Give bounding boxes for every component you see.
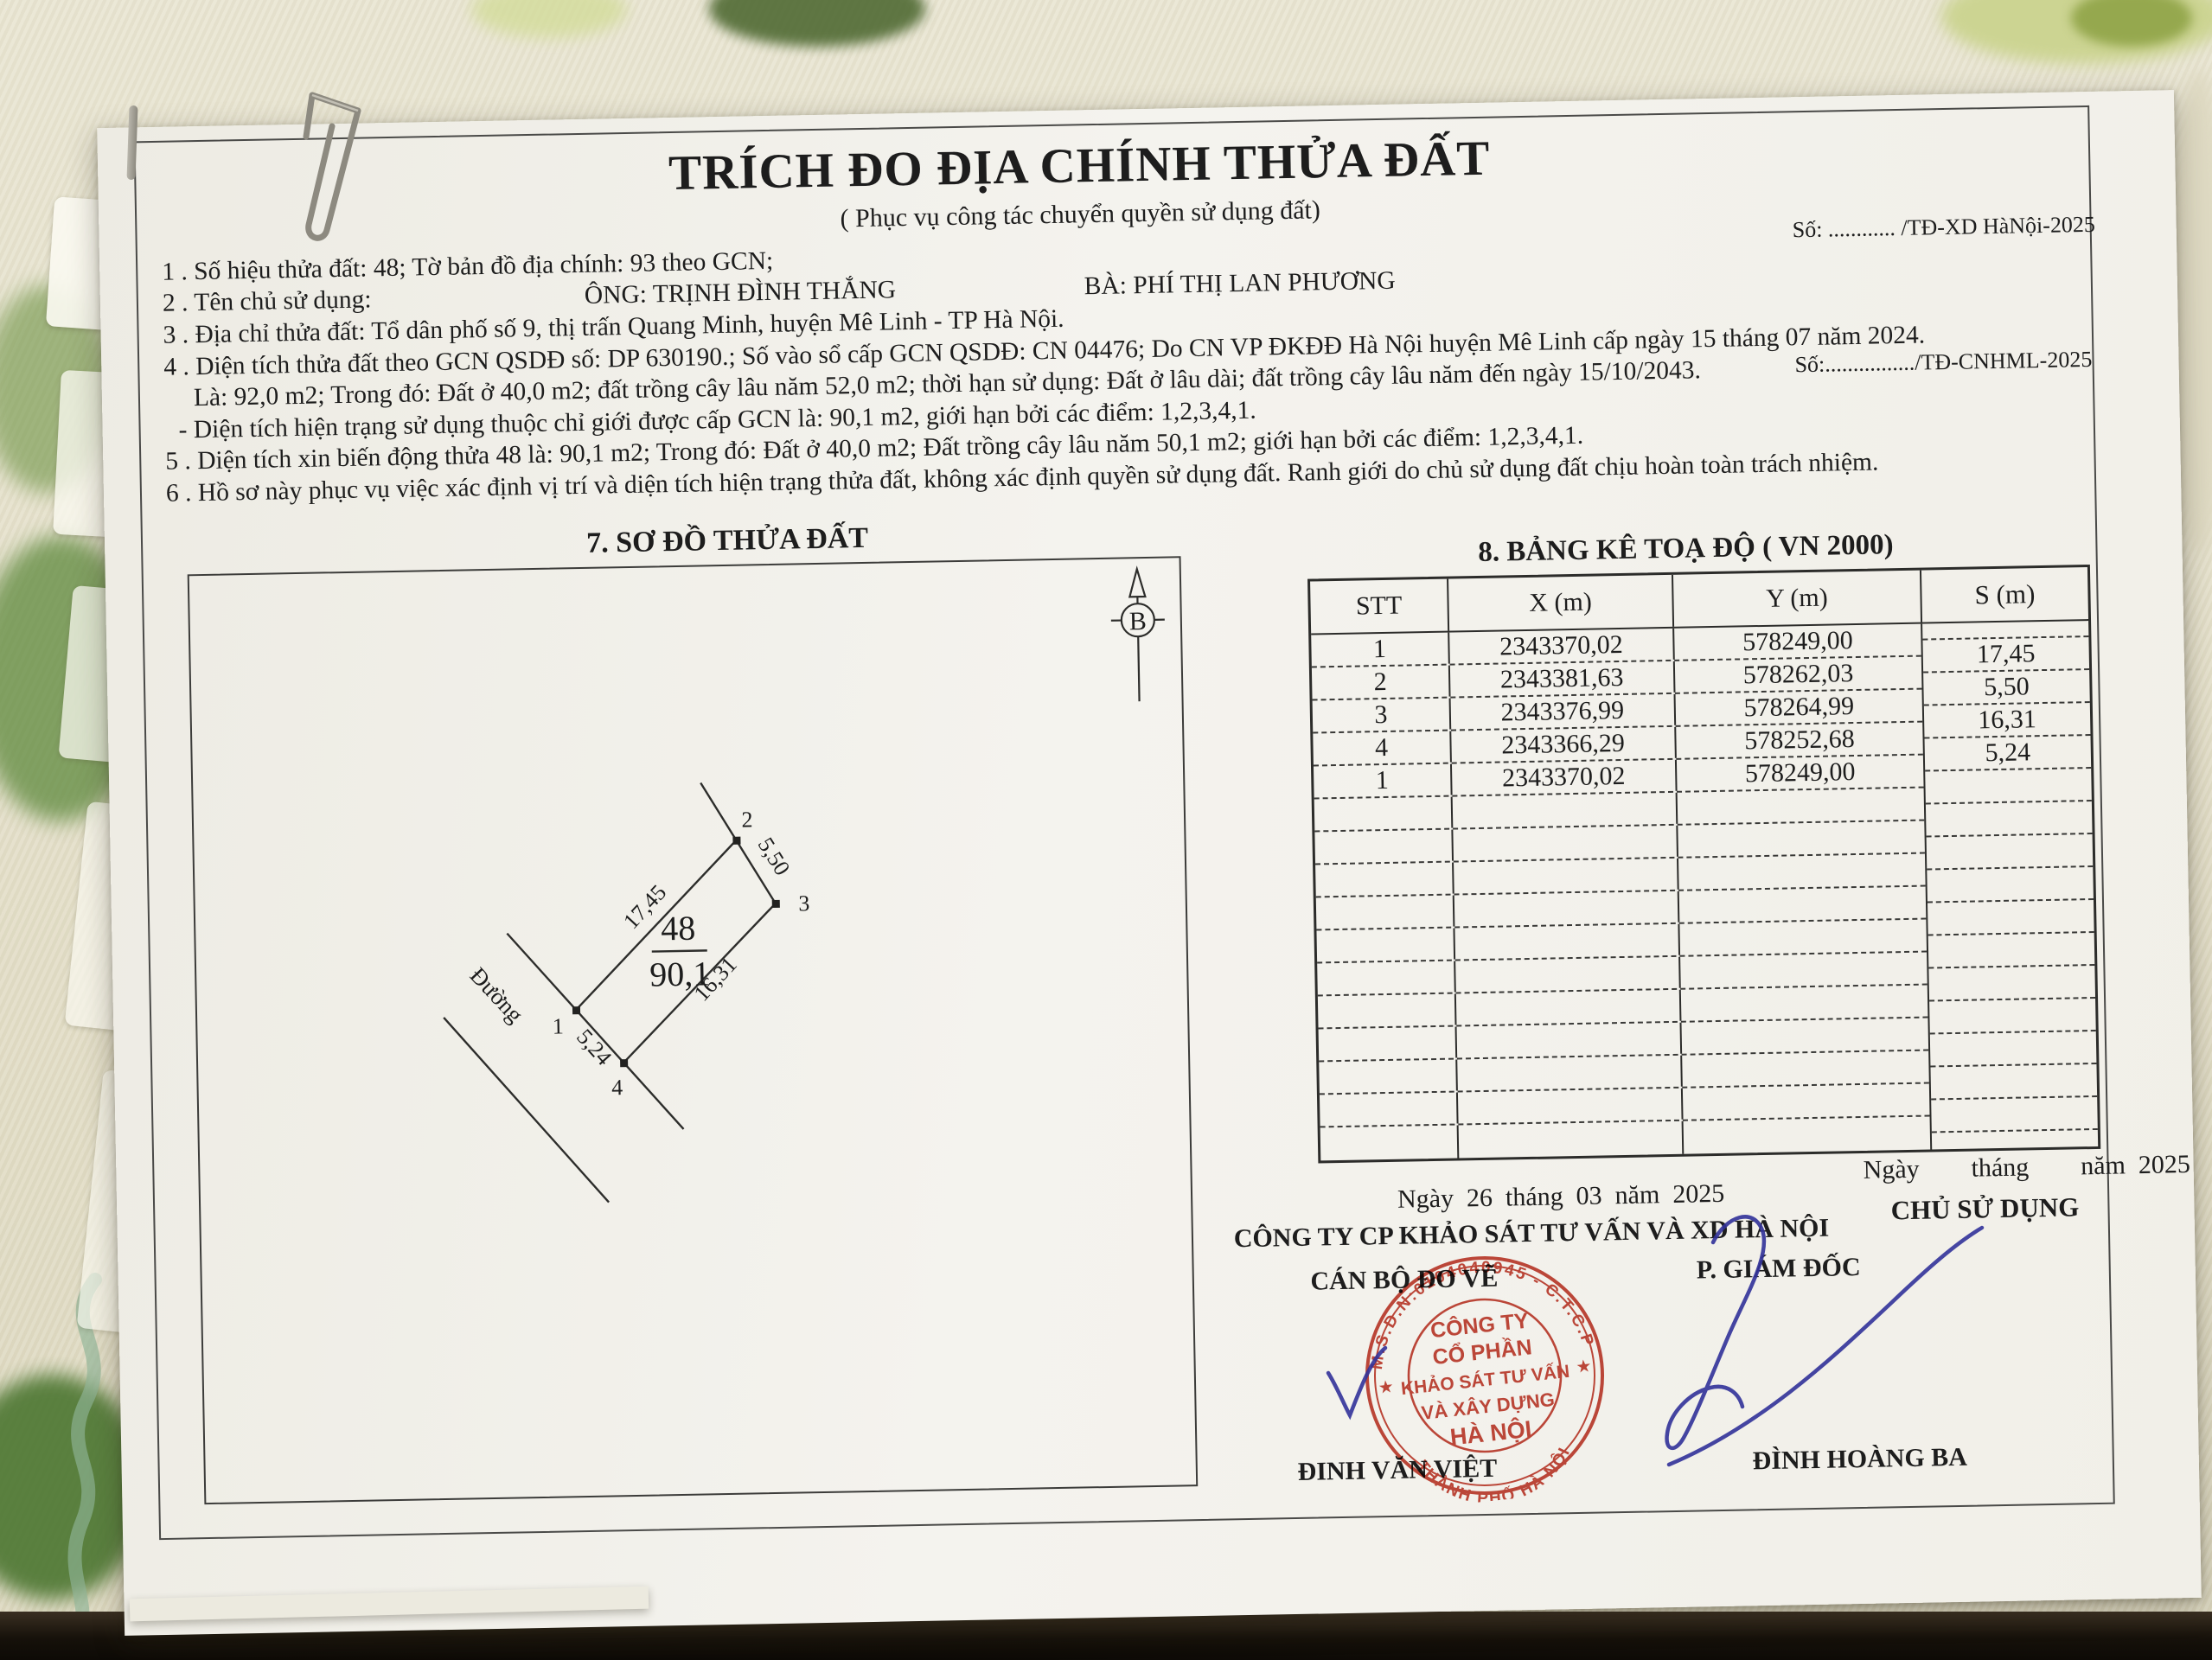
company-stamp: M.S.D.N:0104040945 - C.T.C.P THÀNH PHỐ H…	[1347, 1238, 1623, 1514]
stamp-line-5: HÀ NỘI	[1448, 1415, 1532, 1451]
vertex-label-4: 4	[611, 1075, 623, 1100]
coordinate-table-body: 12343370,02578249,00 22343381,63578262,0…	[1311, 621, 2098, 1160]
owner-date-line: Ngày tháng năm 2025	[1863, 1151, 2158, 1185]
segment-length-column: 17,45 5,50 16,31 5,24	[1921, 621, 2098, 1149]
stamp-star-left: ★	[1378, 1377, 1395, 1398]
vertex-dot-2	[732, 837, 740, 845]
parcel-sketch-box: 2 3 1 4 17,45 5,50 16,31 5,24 Đường 48 9…	[188, 556, 1199, 1504]
photo-of-cadastral-document: { "refs": { "so1": "Số: ............ /TĐ…	[0, 0, 2212, 1660]
col-header-stt: STT	[1310, 579, 1449, 634]
director-name: ĐÌNH HOÀNG BA	[1725, 1442, 1994, 1477]
edge-length-4-1: 5,24	[572, 1025, 617, 1070]
plot-section-heading: 7. SƠ ĐỒ THỬA ĐẤT	[554, 521, 901, 560]
stamp-star-right: ★	[1576, 1357, 1593, 1377]
vertex-label-1: 1	[553, 1013, 565, 1038]
vertex-label-3: 3	[798, 891, 810, 916]
parcel-info-list: 1 . Số hiệu thửa đất: 48; Tờ bản đồ địa …	[162, 220, 2116, 509]
fraction-line	[652, 950, 707, 951]
north-arrow-head	[1129, 569, 1146, 597]
edge-length-2-3: 5,50	[753, 833, 796, 880]
vertex-dot-1	[572, 1006, 580, 1014]
col-header-s: S (m)	[1920, 567, 2088, 622]
paperclip	[275, 74, 387, 247]
coordinate-table: STT X (m) Y (m) S (m) 12343370,02578249,…	[1307, 565, 2100, 1163]
coordinate-rows: 12343370,02578249,00 22343381,63578262,0…	[1311, 624, 1930, 1161]
segment-length: 16,31	[1924, 705, 2091, 736]
segment-length: 17,45	[1922, 639, 2089, 670]
owner-role: CHỦ SỬ DỤNG	[1846, 1191, 2124, 1227]
owner-label: 2 . Tên chủ sử dụng:	[163, 284, 372, 320]
parcel-area: 90,1	[649, 954, 711, 993]
col-header-x: X (m)	[1448, 575, 1674, 631]
director-role: P. GIÁM ĐỐC	[1665, 1252, 1891, 1286]
parcel-sketch: 2 3 1 4 17,45 5,50 16,31 5,24 Đường 48 9…	[189, 558, 1192, 1498]
vertex-dot-4	[620, 1059, 628, 1067]
vertex-label-2: 2	[741, 807, 753, 832]
segment-length: 5,24	[1925, 737, 2092, 769]
col-header-y: Y (m)	[1673, 571, 1921, 627]
document-sheet: Số: ............ /TĐ-XD HàNội-2025 Số:..…	[97, 90, 2202, 1636]
vertex-dot-3	[772, 900, 780, 908]
parcel-number: 48	[661, 909, 696, 948]
segment-length: 5,50	[1923, 672, 2090, 703]
road-label: Đường	[465, 962, 528, 1028]
north-label: B	[1129, 607, 1148, 635]
